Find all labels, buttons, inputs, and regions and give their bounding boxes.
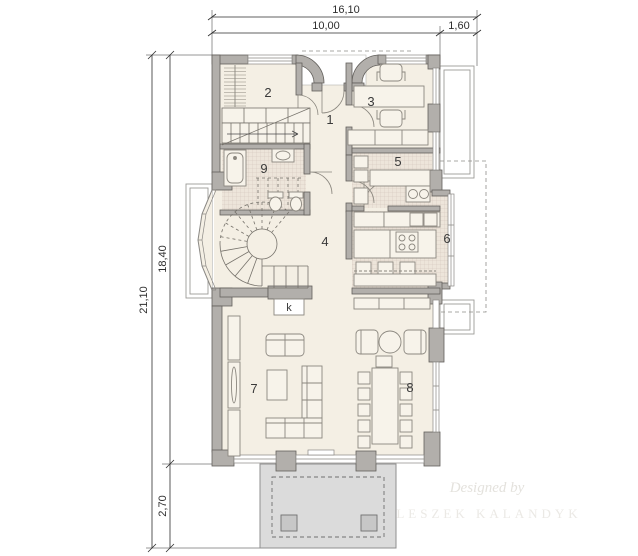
wall-living-left <box>220 288 268 297</box>
media-unit-top <box>228 316 240 360</box>
wall-entry-left <box>312 83 322 91</box>
room-label-3: 3 <box>367 94 374 109</box>
media-unit-middle <box>228 362 240 408</box>
utility-sink-unit <box>406 186 430 202</box>
desk <box>354 86 424 107</box>
wall-right-b <box>428 104 440 132</box>
utility-counter <box>370 170 430 186</box>
room-label-9: 9 <box>260 161 267 176</box>
terrace <box>260 464 396 548</box>
armchair-left <box>356 330 378 354</box>
terrace-pillar-right <box>361 515 377 531</box>
terrace-step-sill <box>308 450 334 455</box>
wall-top-c <box>378 55 386 64</box>
wall-column-bottom-right <box>356 451 376 471</box>
dining-chair-l2 <box>358 388 370 400</box>
dim-top-right: 1,60 <box>448 20 469 32</box>
stool-3 <box>400 262 415 275</box>
dining-chair-r4 <box>400 420 412 432</box>
room-label-4: 4 <box>321 234 328 249</box>
room-label-8: 8 <box>406 380 413 395</box>
dining-chair-head <box>376 356 392 367</box>
round-table <box>379 331 401 353</box>
watermark-line1: Designed by <box>449 480 525 496</box>
dining-chair-l1 <box>358 372 370 384</box>
utility-cabinet-b <box>354 170 368 182</box>
room-label-5: 5 <box>394 154 401 169</box>
office-chair-top <box>380 64 402 81</box>
bidet-bowl <box>291 197 302 211</box>
stool-1 <box>356 262 371 275</box>
wall-room5-kitchen-b <box>388 206 440 211</box>
floorplan-drawing: Designed by LESZEK KALANDYK 16,10 10,00 … <box>0 0 638 556</box>
kitchen-counter-top <box>384 212 440 227</box>
wall-kitchen-dining <box>352 288 440 294</box>
room-label-6: 6 <box>443 231 450 246</box>
wall-pier-right-dining <box>429 328 444 362</box>
balcony-bottomright-inner <box>444 304 470 330</box>
kitchen-fridge <box>354 212 384 227</box>
dining-chair-r3 <box>400 404 412 416</box>
kitchen-counter-bottom <box>354 274 436 286</box>
wall-bath-right-a <box>304 144 310 174</box>
wall-bath-right-b <box>304 192 310 215</box>
room-label-2: 2 <box>264 85 271 100</box>
wall-kitchen-left <box>346 211 352 259</box>
dim-top-left: 10,00 <box>312 20 340 32</box>
coffee-table <box>267 370 287 400</box>
office-chair-bottom <box>380 110 402 127</box>
sofa-bottom <box>266 418 322 438</box>
stool-2 <box>378 262 393 275</box>
room-label-1: 1 <box>326 112 333 127</box>
media-unit-bottom <box>228 410 240 456</box>
wall-stairs-bath <box>220 144 310 149</box>
window-dining-upper <box>433 300 439 328</box>
wall-left-upper <box>212 55 220 173</box>
wall-corner-bottom-right <box>424 432 440 466</box>
dining-chair-l3 <box>358 404 370 416</box>
fireplace-label: k <box>286 302 292 314</box>
dim-side-bottom: 2,70 <box>157 495 169 516</box>
wall-room5-kitchen-a <box>352 206 364 211</box>
dim-top-total: 16,10 <box>332 4 360 16</box>
dim-side-total: 21,10 <box>138 286 150 314</box>
wall-bay-right-top <box>432 190 450 196</box>
wall-room2-right <box>296 63 302 95</box>
wall-hall-room5-a <box>346 155 352 181</box>
utility-washer <box>354 188 368 204</box>
toilet-bowl <box>270 197 282 211</box>
wall-right-a <box>428 55 440 69</box>
wall-left-lower <box>212 306 222 452</box>
shower-drain <box>234 157 237 160</box>
room-label-7: 7 <box>250 381 257 396</box>
office-cabinet-row <box>348 130 428 145</box>
armchair-right <box>404 330 426 354</box>
dim-side-main: 18,40 <box>157 245 169 273</box>
floorplan-page: Designed by LESZEK KALANDYK 16,10 10,00 … <box>0 0 638 556</box>
window-room2-top <box>248 55 292 64</box>
dining-chair-r5 <box>400 436 412 448</box>
dining-chair-l4 <box>358 420 370 432</box>
balcony-topright-inner <box>444 70 470 174</box>
watermark-line2: LESZEK KALANDYK <box>396 506 581 521</box>
kitchen-island <box>354 230 436 258</box>
wall-room3-room5 <box>352 148 440 153</box>
main-staircase <box>222 108 310 145</box>
dining-table <box>372 368 398 444</box>
sofa-vertical <box>302 366 322 418</box>
wall-hall-room3-a <box>346 63 352 105</box>
window-room3-top <box>386 55 426 64</box>
kitchen-fixtures <box>354 212 440 286</box>
dining-chair-l5 <box>358 436 370 448</box>
terrace-pillar-left <box>281 515 297 531</box>
wall-column-bottom-left <box>276 451 296 471</box>
utility-cabinet-a <box>354 156 368 168</box>
sideboard <box>354 298 430 309</box>
